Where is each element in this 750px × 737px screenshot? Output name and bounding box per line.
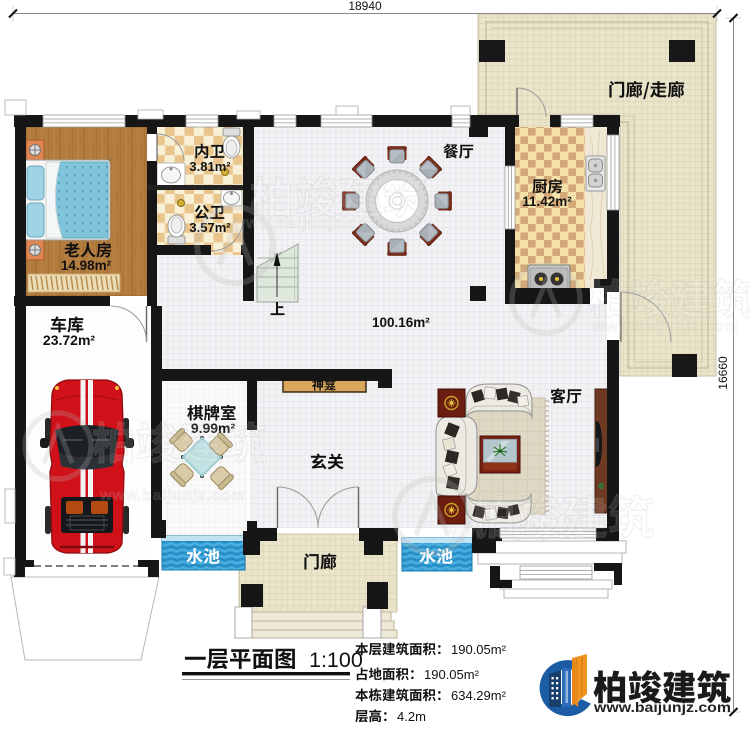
svg-text:18940: 18940	[348, 0, 382, 13]
svg-text:190.05m²: 190.05m²	[424, 667, 480, 682]
svg-text:100.16m²: 100.16m²	[372, 315, 430, 330]
svg-text:3.81m²: 3.81m²	[189, 159, 231, 174]
svg-text:www.baijunjz.com: www.baijunjz.com	[593, 700, 731, 715]
svg-text:www.baijunjz.com: www.baijunjz.com	[449, 524, 595, 541]
svg-text:www.baijunjz.com: www.baijunjz.com	[232, 215, 383, 232]
svg-text:4.2m: 4.2m	[397, 709, 426, 724]
svg-text:3.57m²: 3.57m²	[189, 220, 231, 235]
svg-text:16660: 16660	[716, 356, 730, 390]
svg-text:190.05m²: 190.05m²	[451, 642, 507, 657]
svg-text:1:100: 1:100	[309, 648, 363, 672]
svg-text:634.29m²: 634.29m²	[451, 688, 507, 703]
svg-text:www.baijunjz.com: www.baijunjz.com	[592, 318, 738, 335]
svg-text:14.98m²: 14.98m²	[61, 258, 112, 273]
svg-text:23.72m²: 23.72m²	[43, 332, 95, 348]
svg-text:11.42m²: 11.42m²	[522, 194, 572, 209]
svg-text:www.baijunjz.com: www.baijunjz.com	[99, 487, 245, 504]
